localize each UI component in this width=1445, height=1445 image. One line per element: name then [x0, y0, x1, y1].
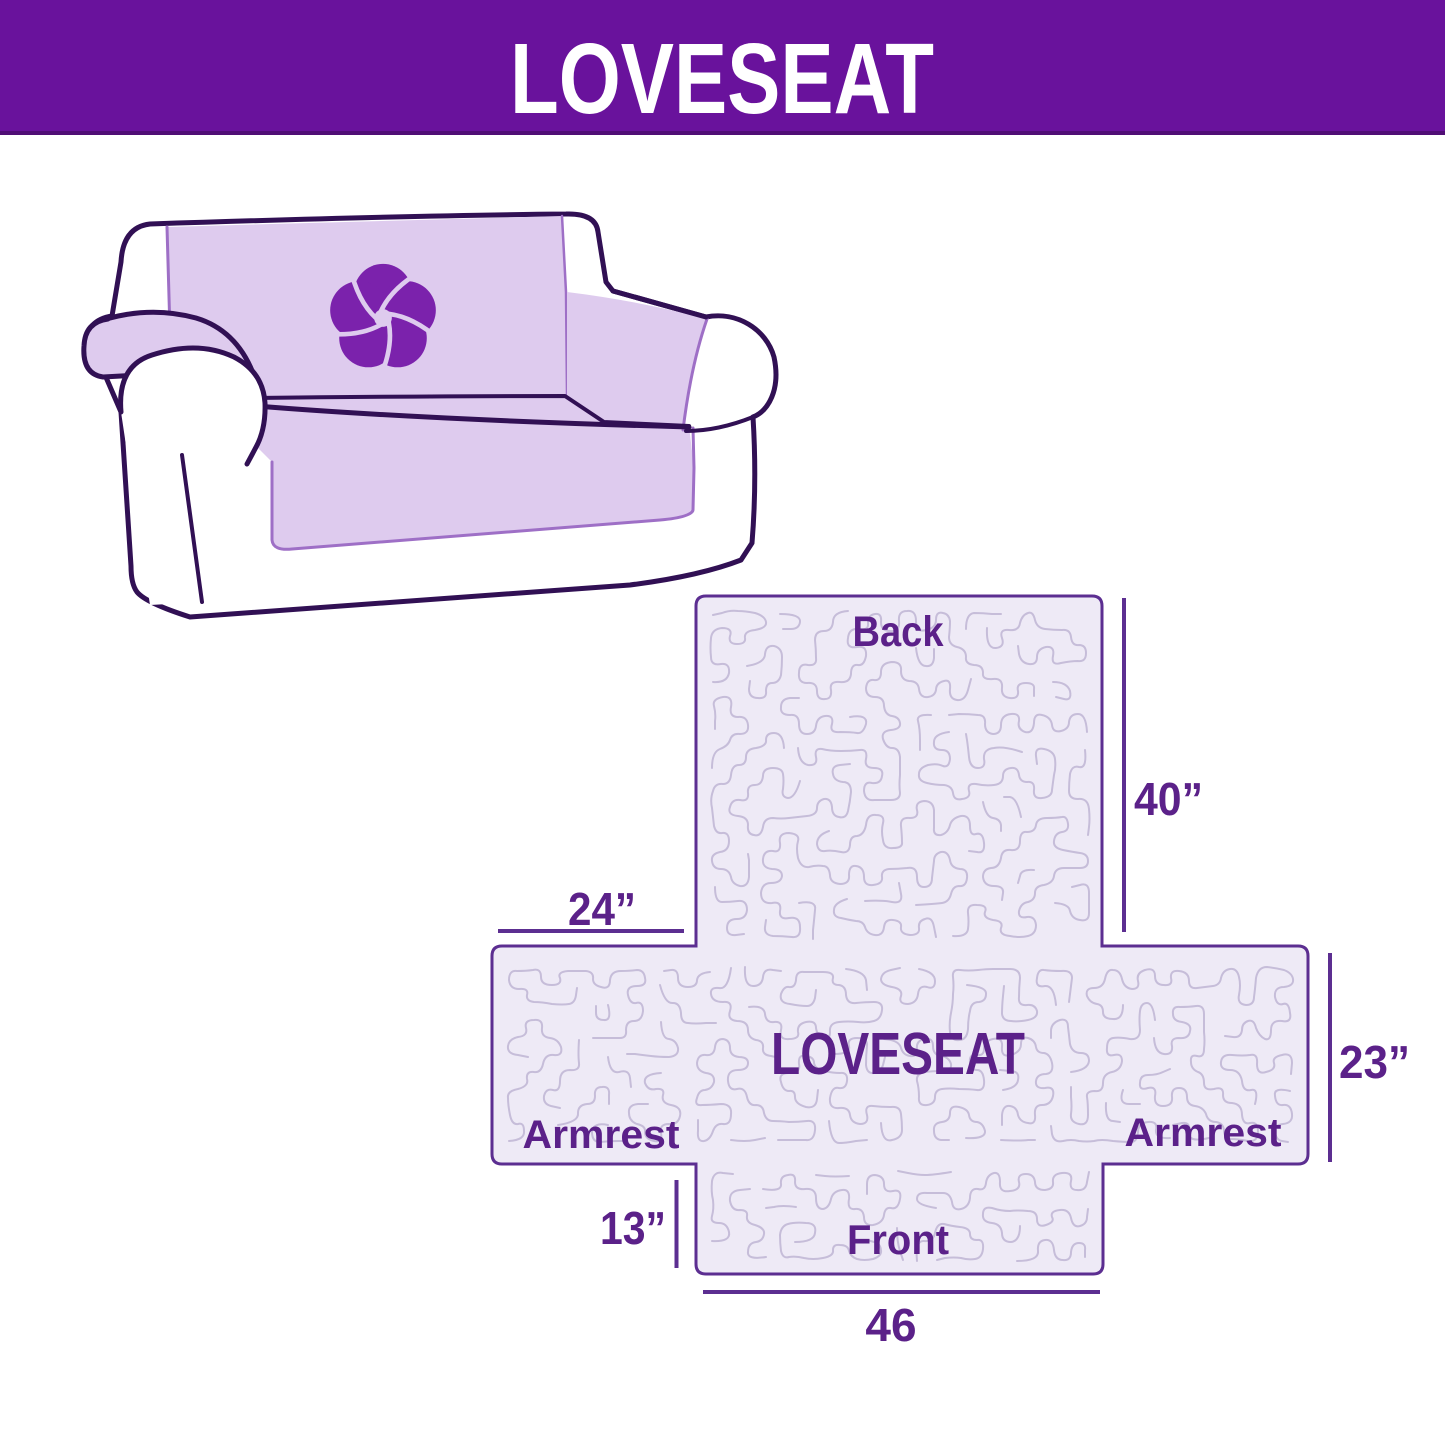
svg-text:Armrest: Armrest [523, 1113, 680, 1157]
svg-text:Armrest: Armrest [1125, 1111, 1282, 1155]
svg-text:24”: 24” [568, 883, 636, 935]
svg-text:40”: 40” [1134, 773, 1203, 825]
svg-text:LOVESEAT: LOVESEAT [510, 23, 934, 135]
svg-text:LOVESEAT: LOVESEAT [771, 1021, 1025, 1087]
svg-text:Front: Front [847, 1216, 949, 1263]
svg-text:13”: 13” [600, 1202, 666, 1254]
svg-text:Back: Back [853, 608, 944, 656]
svg-text:23”: 23” [1339, 1036, 1410, 1088]
svg-text:46: 46 [865, 1299, 916, 1351]
